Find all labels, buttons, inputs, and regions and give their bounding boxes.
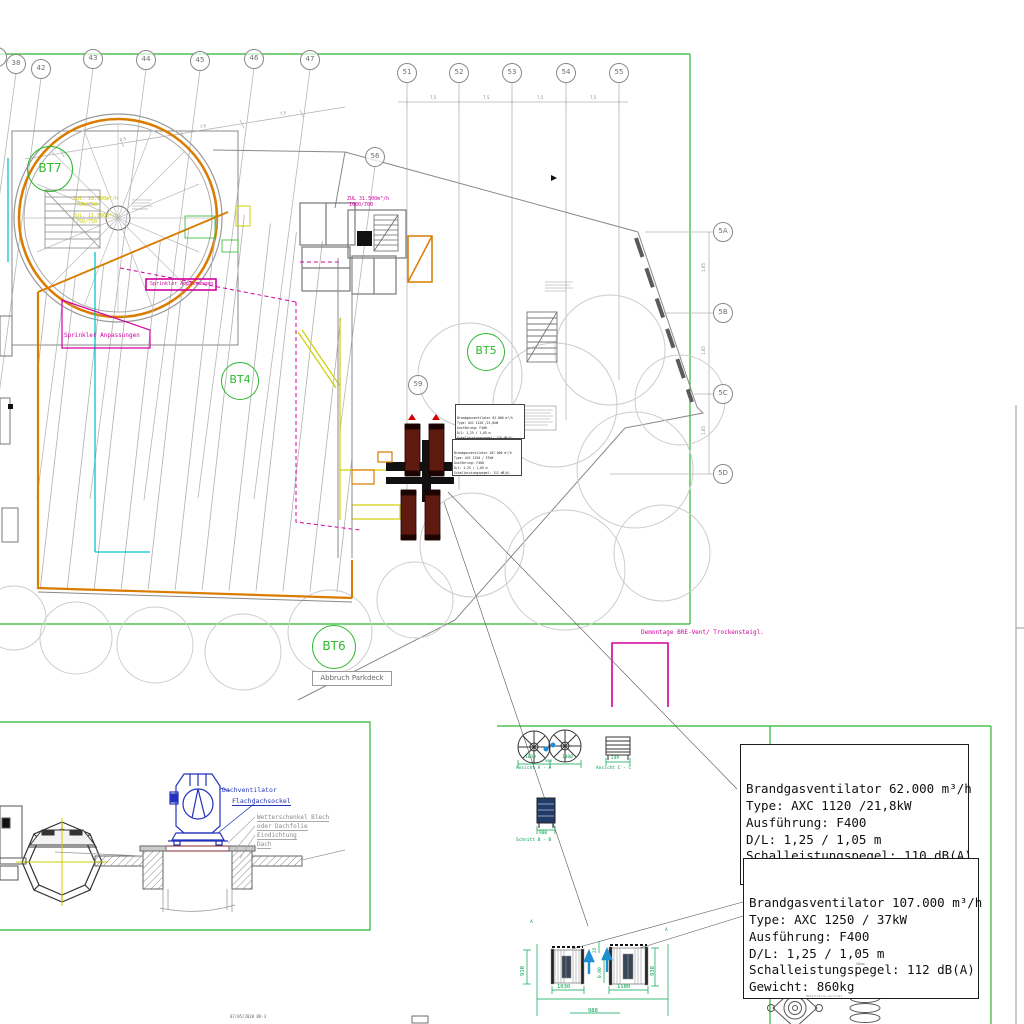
section-dim-wright: 1180 [617, 984, 630, 990]
section-dim-wleft: 1030 [557, 984, 570, 990]
zul-note-3b: 1000/700 [349, 202, 373, 208]
svg-text:7,5: 7,5 [590, 95, 597, 100]
sprinkler-note-2: Sprinkler Anpassungen [150, 281, 213, 287]
section-dim-zero: 0,00 [598, 967, 603, 978]
leader-lines [444, 492, 743, 949]
section-marker-2: A [665, 928, 668, 933]
red-markers [408, 414, 440, 420]
spec-line: D/L: 1,25 / 1,05 m [749, 946, 973, 963]
svg-text:1,65: 1,65 [701, 263, 706, 272]
bt-circle: BT5 [467, 333, 505, 371]
plan-callout-1: Brandgasventilator 62.000 m³/hType: AXC … [455, 404, 525, 439]
svg-text:7,5: 7,5 [279, 110, 287, 116]
plan-callout-2: Brandgasventilator 107.000 m³/hType: AXC… [452, 439, 522, 476]
grid-bubble: 53 [502, 63, 522, 83]
section-dim-span: 988 [588, 1008, 598, 1014]
roof-layer-label: oder Dachfolie [257, 823, 308, 831]
shaft-black [357, 231, 372, 246]
abbruch-parkdeck-label: Abbruch Parkdeck [312, 671, 392, 686]
grid-bubble: 42 [31, 59, 51, 79]
ansicht-aa-caption: Ansicht A - A [516, 766, 551, 771]
svg-text:1,65: 1,65 [701, 346, 706, 355]
dachventilator-label: Dachventilator [222, 786, 277, 794]
grid-bubble: 47 [300, 50, 320, 70]
spec-line: Ausführung: F400 [749, 929, 973, 946]
ansicht-aa-gap: 988 [545, 758, 552, 763]
grid-bubble: 45 [190, 51, 210, 71]
grid-bubble: 54 [556, 63, 576, 83]
svg-text:7,5: 7,5 [199, 123, 207, 129]
mount-note: Metallteile verzinkt [806, 994, 842, 998]
grid-row-bubble: 5B [713, 303, 733, 323]
grid-bubble: 56 [365, 147, 385, 167]
stairwell-bt5 [527, 312, 557, 362]
svg-text:7,5: 7,5 [119, 136, 127, 142]
schnitt-bb [537, 798, 555, 828]
orange-room [408, 236, 432, 282]
grid-bubble: 51 [397, 63, 417, 83]
grid-bubble: 59 [408, 375, 428, 395]
roof-layer-label: Eindichtung [257, 832, 297, 840]
edge-dot [8, 404, 13, 409]
ansicht-cc-caption: Ansicht C - C [596, 766, 631, 771]
ansicht-aa-dim2: 1100 [562, 755, 573, 760]
rooms-cluster [300, 203, 406, 294]
section-marker-1: A [530, 920, 533, 925]
cutoff-fan-sideview [0, 806, 26, 880]
grid-bubble: 46 [244, 49, 264, 69]
dachventilator-detail [55, 774, 345, 912]
grid-bubble: 44 [136, 50, 156, 70]
grid-bubble: 43 [83, 49, 103, 69]
svg-text:7,5: 7,5 [430, 95, 437, 100]
section-dim-gap: 25 [593, 948, 598, 953]
spec-line: Brandgasventilator 107.000 m³/h [749, 895, 973, 912]
bt-circle: BT6 [312, 625, 356, 669]
spec-line: Brandgasventilator 62.000 m³/h [746, 781, 963, 798]
spec-line: Gewicht: 860kg [749, 979, 973, 996]
bt-circle: BT7 [27, 146, 73, 192]
grid-lines [0, 68, 714, 500]
schnitt-bb-dim: 900 [539, 831, 547, 836]
stairwell-top [374, 215, 398, 251]
spec-line: Ausführung: F400 [746, 815, 963, 832]
revision-table: b neue Arch. ausgelegt VOB 18.04.2022 a … [230, 986, 490, 1024]
flachdachsockel-label: Flachdachsockel [232, 797, 291, 806]
grid-row-bubble: 5C [713, 384, 733, 404]
grid-bubble: 52 [449, 63, 469, 83]
magenta-solid [62, 279, 668, 707]
titleblock-caption: 07/05/2020 BO-3 [230, 1014, 266, 1019]
hall-roof-seams [0, 200, 408, 600]
zul-note-2b: 750/750 [76, 219, 97, 225]
svg-text:1,65: 1,65 [701, 426, 706, 435]
cowl-sideview [28, 826, 97, 850]
svg-text:7,5: 7,5 [537, 95, 544, 100]
hall-border [38, 212, 352, 602]
yellow-ducts [298, 318, 418, 520]
zul-note-1b: 750/750 [76, 202, 97, 208]
demontage-bre-note: Demontage BRE-Vent/ Trockensteigl. [641, 629, 764, 636]
ansicht-aa-dim1: 1030 [525, 755, 536, 760]
spec-line: D/L: 1,25 / 1,05 m [746, 832, 963, 849]
roof-layer-label: Dach [257, 841, 271, 849]
cad-sheet: 7,57,5 7,57,5 7,5 7,5 7,5 1,65 1,65 1,65 [0, 0, 1024, 1024]
spec-box-2: Brandgasventilator 107.000 m³/hType: AXC… [743, 858, 979, 999]
grid-row-bubble: 5D [713, 464, 733, 484]
mount-dim: 50mm [856, 962, 864, 966]
roof-layer-label: Wetterschenkel Blech [257, 814, 329, 822]
section-dim-hleft: 910 [520, 966, 526, 976]
schnitt-bb-caption: Schnitt B - B [516, 838, 551, 843]
section-dim-hright: 938 [650, 966, 656, 976]
spec-line: Type: AXC 1120 /21,8kW [746, 798, 963, 815]
grid-row-bubble: 5A [713, 222, 733, 242]
sprinkler-note-1: Sprinkler Anpassungen [64, 332, 140, 339]
site-edge-hatch [636, 238, 692, 402]
grid-bubble: 38 [6, 54, 26, 74]
spec-line: Type: AXC 1250 / 37kW [749, 912, 973, 929]
ansicht-cc-dim: 249 [611, 756, 619, 761]
grid-bubble: 55 [609, 63, 629, 83]
bt-circle: BT4 [221, 362, 259, 400]
edge-structures [0, 316, 18, 542]
svg-text:7,5: 7,5 [483, 95, 490, 100]
north-marker [551, 175, 557, 181]
sheet-margin [1016, 405, 1024, 1024]
